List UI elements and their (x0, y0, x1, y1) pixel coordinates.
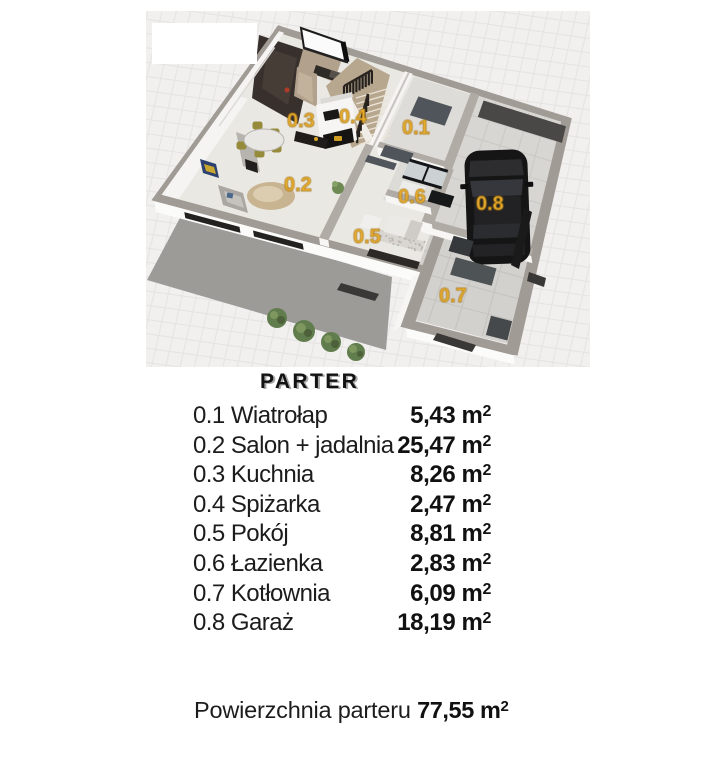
svg-text:0.2: 0.2 (284, 174, 312, 196)
svg-text:0.7: 0.7 (439, 285, 467, 307)
svg-text:0.3: 0.3 (287, 110, 315, 132)
svg-text:0.6: 0.6 (398, 186, 426, 208)
svg-text:0.1: 0.1 (402, 117, 430, 139)
svg-text:0.4: 0.4 (339, 106, 368, 128)
svg-text:0.5: 0.5 (353, 226, 381, 248)
svg-text:0.8: 0.8 (476, 193, 504, 215)
